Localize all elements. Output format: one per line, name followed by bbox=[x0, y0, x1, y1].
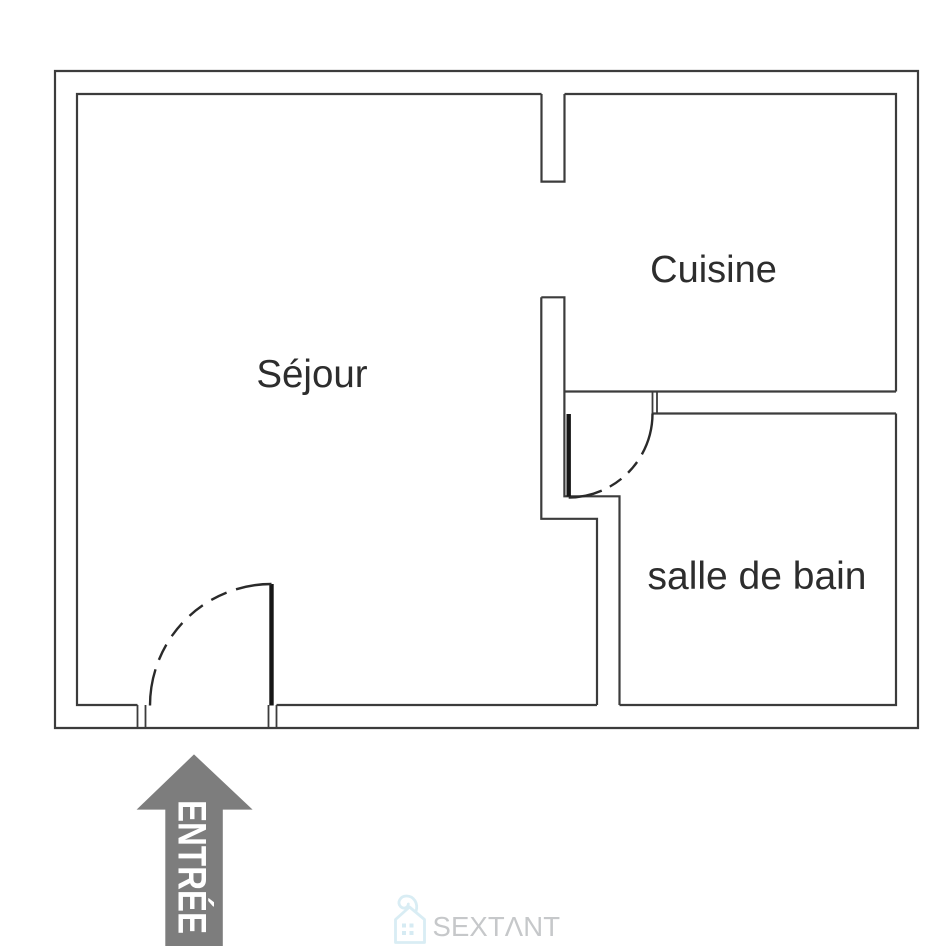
svg-text:salle de bain: salle de bain bbox=[648, 555, 867, 598]
svg-text:SEXTΛNT: SEXTΛNT bbox=[433, 911, 561, 942]
svg-text:Séjour: Séjour bbox=[256, 353, 367, 396]
svg-text:Cuisine: Cuisine bbox=[650, 249, 777, 291]
svg-text:ENTRÉE: ENTRÉE bbox=[170, 800, 215, 934]
